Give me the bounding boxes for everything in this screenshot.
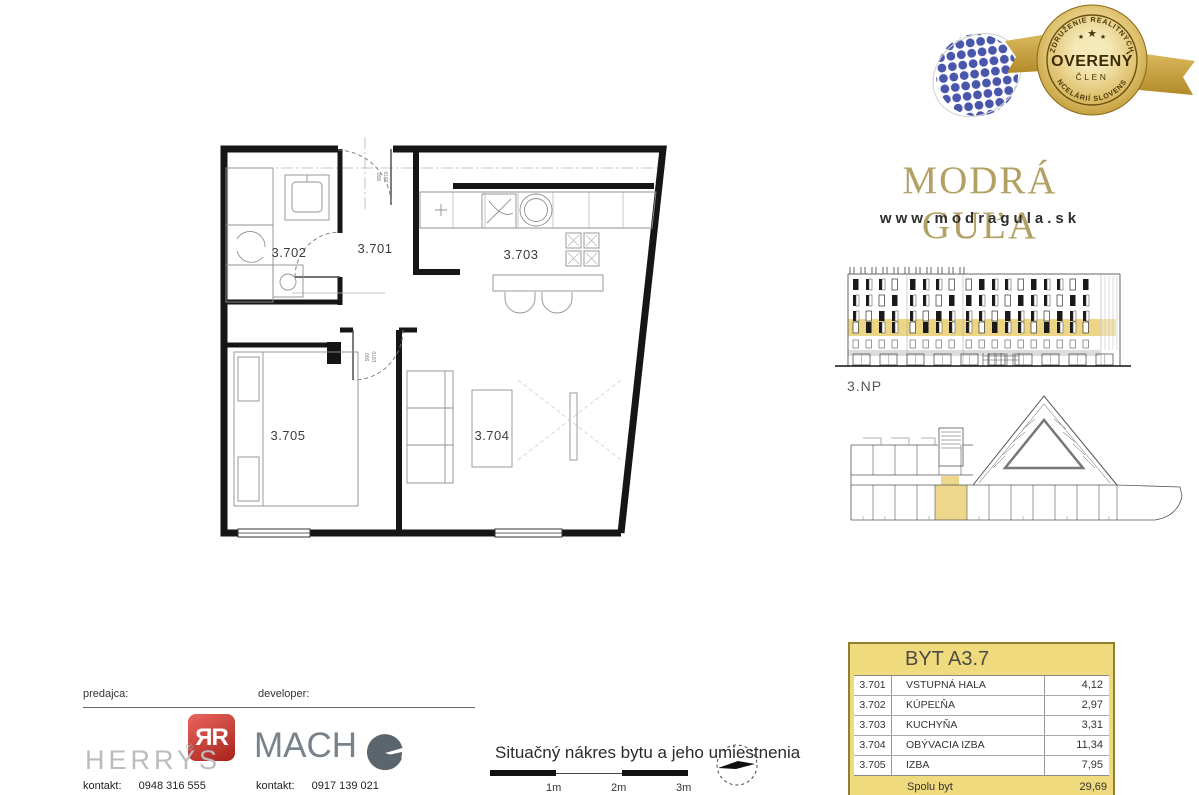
star-icon: ★ (1100, 33, 1106, 41)
area-table-title: BYT A3.7 (850, 644, 1113, 675)
room-label: 3.702 (271, 245, 306, 260)
registered-mark: ® (186, 742, 193, 752)
room-area: 3,31 (1044, 716, 1109, 735)
developer-label: developer: (258, 688, 309, 700)
projection-lines (518, 380, 621, 460)
room-area: 2,97 (1044, 696, 1109, 715)
outer-wall-diagonal (393, 149, 663, 533)
room-label: 3.703 (503, 247, 538, 262)
outlet-symbol (435, 204, 447, 216)
room-name: IZBA (892, 756, 1044, 775)
sofa-symbol (407, 371, 453, 483)
seller-label: predajca: (83, 688, 128, 700)
room-code: 3.704 (854, 736, 892, 755)
overeny-medal: ZDRUŽENIE REALITNÝCH KANCELÁRIÍ SLOVENSK… (1005, 3, 1197, 125)
room-code: 3.705 (854, 756, 892, 775)
window-symbol (495, 529, 562, 537)
brand-website: www.modragula.sk (840, 210, 1120, 227)
seller-contact: kontakt: 0948 316 555 (83, 780, 206, 792)
table-row: 3.704 OBÝVACIA IZBA 11,34 (854, 736, 1109, 756)
door-dimension: 900 (365, 353, 371, 362)
toilet-symbol (273, 265, 303, 297)
divider-line (83, 707, 475, 708)
star-icon: ★ (1078, 33, 1084, 41)
building-elevation-drawing (833, 254, 1133, 372)
macho-pie-icon (366, 734, 404, 772)
table-row: 3.703 KUCHYŇA 3,31 (854, 716, 1109, 736)
phone-number: 0917 139 021 (312, 780, 379, 792)
badge-center-text: OVERENÝ (1051, 51, 1133, 70)
room-label: 3.705 (270, 428, 305, 443)
window-symbol (238, 529, 310, 537)
macho-wordmark: MACH (254, 726, 357, 766)
scale-segment (490, 770, 556, 776)
room-name: OBÝVACIA IZBA (892, 736, 1044, 755)
outer-wall (224, 149, 621, 533)
room-code: 3.701 (854, 676, 892, 695)
sink-symbol (285, 175, 329, 220)
page: ZDRUŽENIE REALITNÝCH KANCELÁRIÍ SLOVENSK… (0, 0, 1199, 795)
floor-plan-drawing: 900 1970 900 1970 (213, 135, 683, 547)
total-value: 29,69 (1049, 776, 1113, 795)
hood-symbol (482, 194, 516, 228)
scale-segment (622, 770, 688, 776)
highlighted-unit (935, 485, 967, 520)
contact-label: kontakt: (83, 780, 122, 792)
contact-label: kontakt: (256, 780, 295, 792)
developer-contact: kontakt: 0917 139 021 (256, 780, 379, 792)
scale-bar: 1m 2m 3m (490, 770, 700, 795)
kitchen-counter (420, 192, 656, 228)
herrys-wordmark: HERRYS (85, 745, 221, 776)
site-plan-drawing (833, 388, 1198, 556)
room-code: 3.703 (854, 716, 892, 735)
scale-label: 1m (546, 782, 561, 794)
room-door (353, 330, 403, 380)
tv-symbol (570, 393, 577, 460)
table-row: 3.705 IZBA 7,95 (854, 756, 1109, 775)
room-label: 3.704 (474, 428, 509, 443)
scale-label: 2m (611, 782, 626, 794)
area-table: BYT A3.7 3.701 VSTUPNÁ HALA 4,12 3.702 K… (848, 642, 1115, 795)
washing-machine-symbol (237, 231, 265, 262)
total-label: Spolu byt (850, 776, 1049, 795)
badge-member-text: ČLEN (1076, 72, 1109, 82)
room-code: 3.702 (854, 696, 892, 715)
room-name: VSTUPNÁ HALA (892, 676, 1044, 695)
scale-label: 3m (676, 782, 691, 794)
room-name: KÚPEĽŇA (892, 696, 1044, 715)
room-name: KUCHYŇA (892, 716, 1044, 735)
stove-symbol (566, 233, 599, 266)
brand-title: MODRÁ GUĽA (840, 158, 1120, 248)
interior-walls (224, 149, 654, 533)
door-dimension: 1970 (384, 171, 390, 182)
bathroom-counter (226, 168, 273, 302)
table-total-row: Spolu byt 29,69 (850, 776, 1113, 795)
kitchen-sink-symbol (520, 194, 552, 226)
bar-stool-symbol (505, 292, 572, 313)
star-icon: ★ (1087, 28, 1097, 40)
bar-counter (493, 275, 603, 291)
scale-segment (556, 773, 622, 774)
table-row: 3.701 VSTUPNÁ HALA 4,12 (854, 676, 1109, 696)
table-row: 3.702 KÚPEĽŇA 2,97 (854, 696, 1109, 716)
room-label: 3.701 (357, 241, 392, 256)
room-area: 7,95 (1044, 756, 1109, 775)
room-area: 11,34 (1044, 736, 1109, 755)
door-dimension: 900 (377, 173, 383, 182)
door-dimension: 1970 (372, 351, 378, 362)
room-area: 4,12 (1044, 676, 1109, 695)
phone-number: 0948 316 555 (139, 780, 206, 792)
compass-icon (714, 742, 760, 788)
